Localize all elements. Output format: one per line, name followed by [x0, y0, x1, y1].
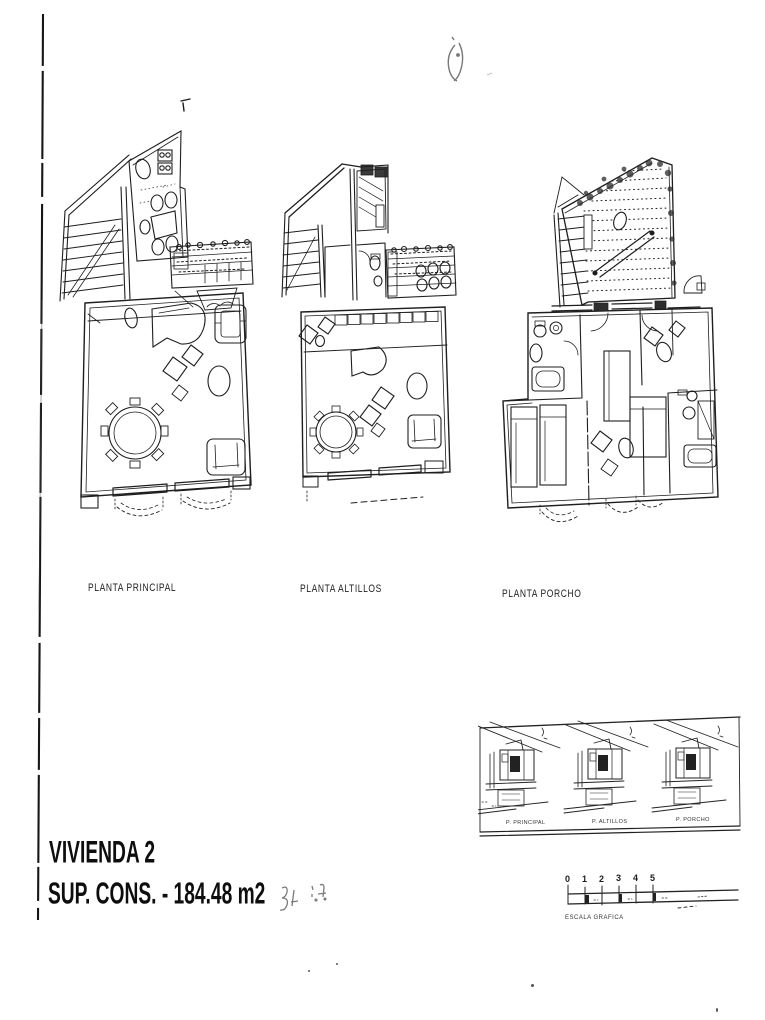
sheet-area: SUP. CONS. - 184.48 m2: [48, 877, 265, 912]
scan-speck: [531, 984, 534, 987]
scan-speck: [336, 963, 338, 965]
scale-tick-5: 5: [650, 873, 655, 883]
elevation-caption-1: P. PRINCIPAL: [506, 820, 545, 826]
elevation-caption-2: P. ALTILLOS: [592, 819, 627, 825]
sheet-title: VIVIENDA 2: [49, 834, 155, 871]
label-planta-principal: PLANTA PRINCIPAL: [88, 581, 176, 594]
elevations-strip-drawing: P. PRINCIPAL P. ALTILLOS P. PORCHO: [478, 712, 742, 844]
scan-speck: [716, 1008, 718, 1012]
elevation-caption-3: P. PORCHO: [676, 817, 710, 823]
scale-tick-1: 1: [582, 874, 587, 884]
scan-speck: [308, 970, 310, 972]
scale-bar: 0 1 2 3 4 5 ESCALA GRAFICA: [558, 870, 748, 925]
plan-altillos-drawing: [273, 155, 468, 525]
scale-tick-4: 4: [633, 873, 638, 883]
plan-porcho-drawing: [492, 155, 732, 537]
handwritten-mark-top: [425, 33, 495, 93]
handwritten-mark-title: [278, 880, 353, 920]
label-planta-porcho: PLANTA PORCHO: [502, 587, 581, 600]
label-planta-altillos: PLANTA ALTILLOS: [300, 582, 382, 595]
scale-tick-2: 2: [599, 874, 604, 884]
scale-bar-label: ESCALA GRAFICA: [565, 915, 624, 921]
scale-tick-0: 0: [565, 874, 570, 884]
plan-principal-drawing: [55, 95, 260, 540]
scale-tick-3: 3: [616, 873, 621, 883]
